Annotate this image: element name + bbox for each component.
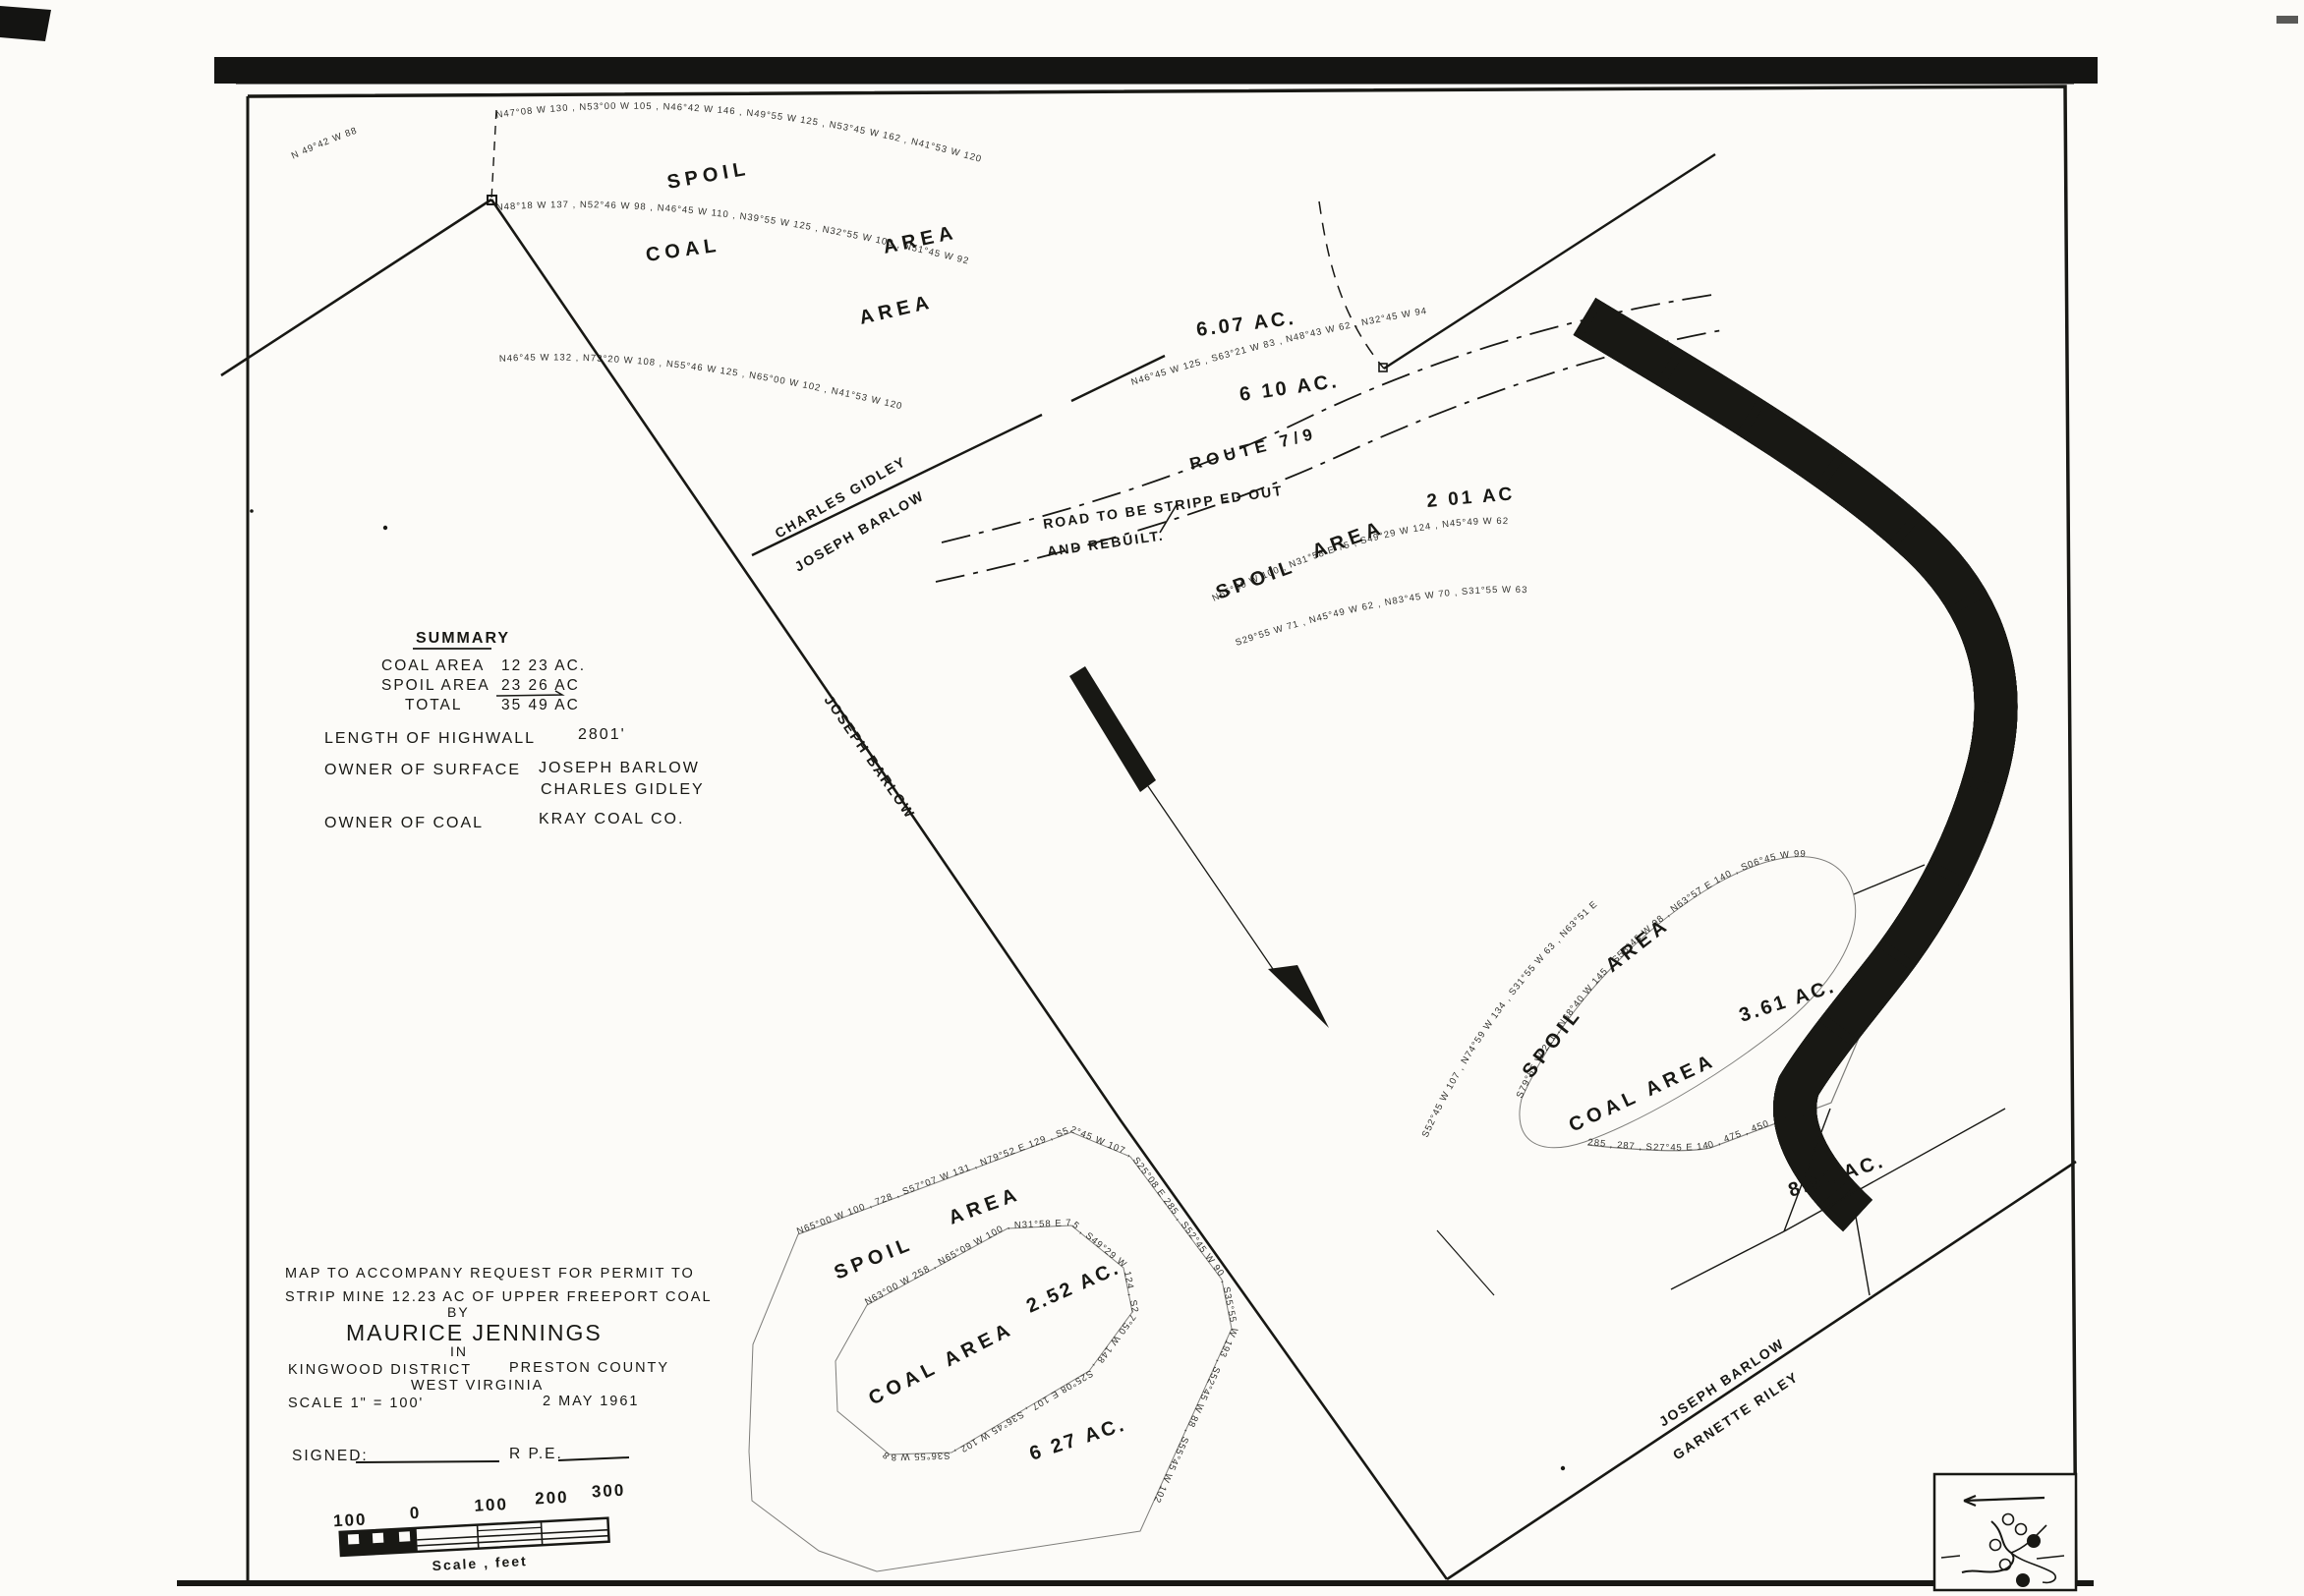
area-mid-label: AREA	[1309, 517, 1388, 563]
coal-area-bottom-label: COAL AREA	[865, 1318, 1017, 1410]
scan-artifacts	[0, 6, 2298, 85]
summary-spoil-label: SPOIL AREA	[381, 677, 490, 694]
scale-caption: Scale , feet	[432, 1553, 528, 1573]
map-scale: SCALE 1" = 100'	[288, 1396, 424, 1411]
scale-bar: 100 0 100 200 300 Scale , feet	[332, 1481, 629, 1579]
summary-total-label: TOTAL	[405, 697, 463, 713]
signature-line	[356, 1461, 499, 1462]
section-bar	[1069, 666, 1156, 792]
rpe-label: R P.E.	[509, 1446, 563, 1462]
summary-heading: SUMMARY	[416, 630, 510, 647]
scale-tick-300: 300	[591, 1481, 625, 1502]
bearing-row: N47°08 W 130 , N53°00 W 105 , N46°42 W 1…	[495, 101, 983, 165]
svg-text:N 49°42 W 88: N 49°42 W 88	[290, 126, 359, 162]
district: KINGWOOD DISTRICT	[288, 1362, 472, 1378]
coal-owner-value: KRAY COAL CO.	[539, 811, 684, 827]
garnette-riley-label: GARNETTE RILEY	[1670, 1368, 1802, 1462]
corner-blob	[0, 6, 51, 41]
boundary-lines	[221, 110, 2076, 1579]
acreage-627: 6 27 AC.	[1027, 1413, 1129, 1465]
highwall-value: 2801'	[578, 726, 626, 743]
title-block: MAP TO ACCOMPANY REQUEST FOR PERMIT TO S…	[285, 1266, 713, 1464]
scale-tick-100L: 100	[333, 1510, 368, 1531]
area-labels: SPOIL AREA COAL AREA 6.07 AC. 6 10 AC. R…	[645, 157, 1888, 1464]
joseph-barlow-line-label: JOSEPH BARLOW	[822, 693, 919, 823]
scale-tick-0: 0	[409, 1504, 421, 1523]
vicinity-inset-map	[1934, 1474, 2076, 1590]
section-arrow	[1268, 965, 1329, 1028]
summary-coal-value: 12 23 AC.	[501, 657, 586, 674]
map-canvas: N 49°42 W 88 N47°08 W 130 , N53°00 W 105…	[0, 0, 2304, 1596]
coal-owner-label: OWNER OF COAL	[324, 815, 484, 831]
summary-total-value: 35 49 AC	[501, 697, 580, 713]
bearing-row: N 49°42 W 88	[290, 126, 359, 162]
acreage-252: 2.52 AC.	[1023, 1257, 1123, 1318]
scale-tick-200: 200	[535, 1488, 569, 1509]
scanned-mine-permit-map: N 49°42 W 88 N47°08 W 130 , N53°00 W 105…	[0, 0, 2304, 1596]
inset-site-dot	[2016, 1573, 2030, 1587]
area-upper2-label: AREA	[857, 291, 936, 329]
area-right-label: AREA	[1602, 913, 1675, 977]
state: WEST VIRGINIA	[411, 1378, 544, 1394]
spoil-mid-label: SPOIL	[1213, 555, 1298, 604]
joseph-barlow-upper-label: JOSEPH BARLOW	[792, 487, 928, 575]
title-in: IN	[450, 1343, 468, 1359]
svg-text:S79°55 W 211 , N68°40 W 145 ,: S79°55 W 211 , N68°40 W 145 , S58°45 W 9…	[1515, 849, 1807, 1101]
road-note-line1: ROAD TO BE STRIPP ED OUT	[1042, 483, 1284, 532]
route-label: ROUTE 7/9	[1187, 424, 1319, 474]
bearing-row: N46°45 W 132 , N73°20 W 108 , N55°46 W 1…	[499, 353, 904, 413]
boundary-west	[221, 199, 491, 375]
rpe-line	[558, 1457, 629, 1460]
surface-owner-value1: JOSEPH BARLOW	[539, 760, 700, 776]
inset-border	[1934, 1474, 2076, 1590]
spoil-upper-label: SPOIL	[665, 157, 752, 193]
bearing-row: S79°55 W 211 , N68°40 W 145 , S58°45 W 9…	[1515, 849, 1807, 1101]
surface-owner-label: OWNER OF SURFACE	[324, 762, 521, 778]
highwall-label: LENGTH OF HIGHWALL	[324, 730, 536, 747]
acreage-610: 6 10 AC.	[1238, 370, 1341, 406]
permittee-name: MAURICE JENNINGS	[346, 1320, 603, 1345]
title-line2: STRIP MINE 12.23 AC OF UPPER FREEPORT CO…	[285, 1289, 713, 1305]
svg-text:N46°45 W 132 , N73°20 W 108 ,: N46°45 W 132 , N73°20 W 108 , N55°46 W 1…	[499, 353, 904, 413]
svg-text:N47°08 W 130 , N53°00 W 105 ,: N47°08 W 130 , N53°00 W 105 , N46°42 W 1…	[495, 101, 983, 165]
spoil-right-label: SPOIL	[1519, 1003, 1587, 1083]
summary-block: SUMMARY COAL AREA 12 23 AC. SPOIL AREA 2…	[324, 630, 705, 831]
county: PRESTON COUNTY	[509, 1360, 669, 1376]
traverse-guides	[749, 857, 1866, 1571]
boundary-northeast	[1384, 154, 1715, 369]
scale-bar-graphic	[340, 1518, 609, 1556]
scale-tick-100: 100	[474, 1495, 508, 1515]
summary-coal-label: COAL AREA	[381, 657, 485, 674]
road-note-line2: AND REBUILT.	[1046, 527, 1165, 559]
charles-gidley-label: CHARLES GIDLEY	[773, 453, 909, 541]
map-frame	[177, 86, 2094, 1584]
surface-owner-value2: CHARLES GIDLEY	[541, 781, 705, 798]
map-date: 2 MAY 1961	[543, 1394, 639, 1409]
title-by: BY	[447, 1304, 470, 1320]
acreage-201: 2 01 AC	[1426, 484, 1516, 512]
summary-spoil-value: 23 26 AC	[501, 677, 580, 694]
coal-area-right-label: COAL AREA	[1566, 1050, 1720, 1137]
title-line1: MAP TO ACCOMPANY REQUEST FOR PERMIT TO	[285, 1266, 695, 1282]
coal-upper-label: COAL	[645, 234, 722, 265]
svg-text:S29°55 W 71 , N45°49 W 62 ,: S29°55 W 71 , N45°49 W 62 , N83°45 W 70 …	[1234, 585, 1527, 649]
bearing-row: S29°55 W 71 , N45°49 W 62 , N83°45 W 70 …	[1234, 585, 1527, 649]
